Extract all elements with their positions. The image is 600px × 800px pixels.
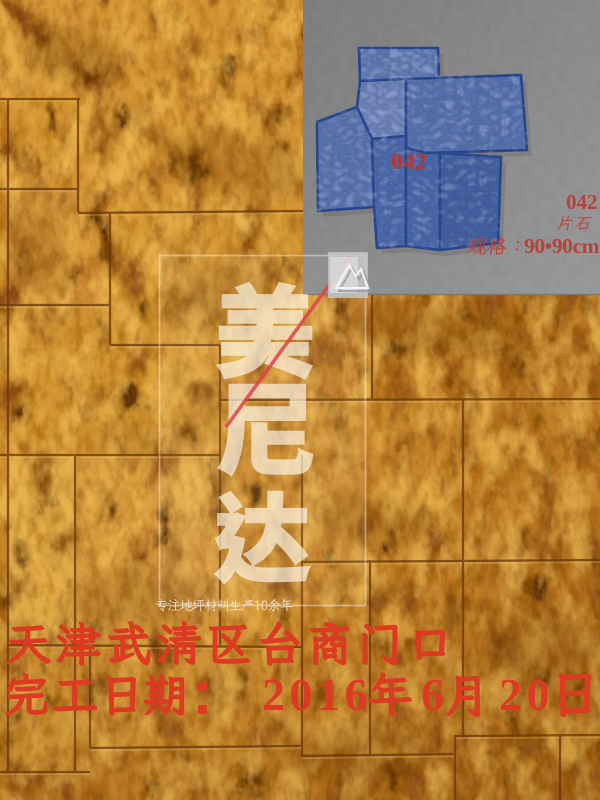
svg-text:20: 20 xyxy=(499,669,554,720)
svg-text:6: 6 xyxy=(421,669,449,720)
svg-text:042: 042 xyxy=(566,190,598,214)
svg-text:2016: 2016 xyxy=(262,669,372,720)
svg-text:90•90cm: 90•90cm xyxy=(524,234,600,258)
svg-text:042: 042 xyxy=(391,149,427,174)
